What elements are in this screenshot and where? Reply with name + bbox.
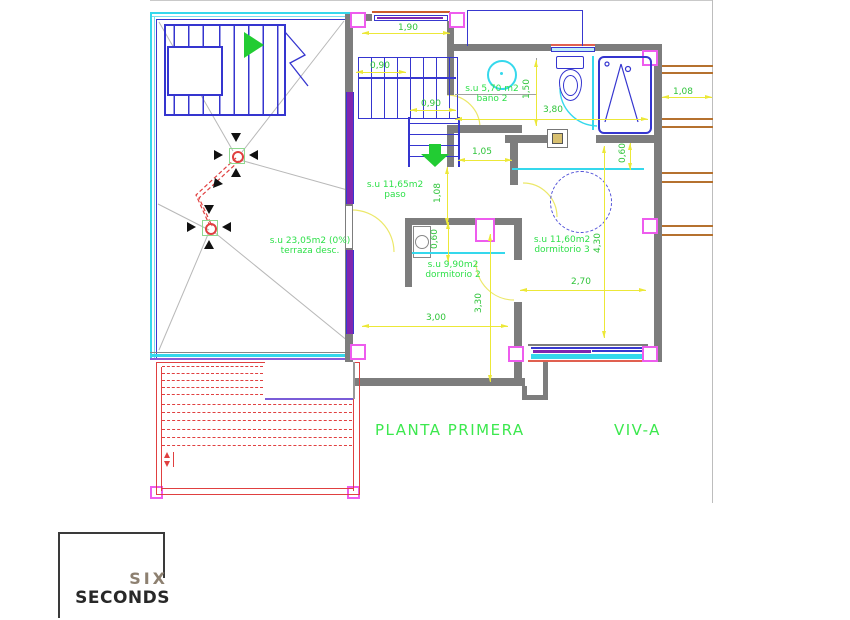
window-top-glazing [377, 17, 443, 19]
window-dorm3-head [528, 344, 648, 346]
paso-area: s.u 11,65m2 [362, 180, 428, 190]
dimension-line-11 [362, 326, 508, 327]
dimension-label-10: 3,30 [474, 289, 484, 317]
terrace-edge-top [150, 12, 353, 14]
terrace-edge-bottom-2 [150, 354, 363, 357]
dormitorio2-name: dormitorio 2 [420, 270, 486, 280]
vent-arrow-left-1 [214, 150, 223, 160]
dimension-label-2: 0,90 [416, 99, 446, 109]
dimension-label-13: 2,70 [566, 277, 596, 287]
pergola-line-2b [662, 126, 713, 128]
toilet-bowl-inner [563, 75, 578, 96]
roof-hatch-a3 [162, 380, 263, 381]
logo-square-left [58, 532, 60, 618]
window-dorm3-base [528, 360, 648, 362]
upper-outline-right [582, 10, 583, 46]
column-5 [508, 346, 524, 362]
dimension-line-13 [520, 290, 646, 291]
dimension-label-4: 1,08 [668, 87, 698, 97]
pergola-line-1b [662, 72, 713, 74]
column-1 [350, 12, 366, 28]
room-label-terraza: s.u 23,05m2 (0%) terraza desc. [262, 236, 358, 256]
column-6 [642, 346, 658, 362]
dimension-label-3: 1,05 [467, 147, 497, 157]
door-gap-dorm2 [514, 260, 522, 302]
terrace-edge-top-3 [156, 19, 353, 20]
dormitorio3-name: dormitorio 3 [528, 245, 596, 255]
dimension-line-0 [362, 33, 450, 34]
chimney-ring-2 [205, 223, 217, 235]
dimension-line-12 [604, 146, 605, 338]
dimension-label-8: 1,08 [433, 179, 443, 207]
room-label-paso: s.u 11,65m2 paso [362, 180, 428, 200]
pergola-line-4a [662, 225, 713, 227]
window-dorm3-glazing [533, 350, 591, 353]
paso-name: paso [362, 190, 428, 200]
interior-stair-divider [358, 77, 456, 79]
dimension-label-1: 0,90 [365, 61, 395, 71]
stair-down-arrow-icon [421, 154, 449, 167]
chimney-ring-1 [232, 151, 244, 163]
vent-arrow-right-2 [222, 222, 231, 232]
roof-hatch-b2 [162, 412, 352, 413]
roof-hatch-b1 [162, 404, 352, 405]
flue-arrow-icon [213, 178, 223, 188]
roof-hatch-b6 [162, 445, 352, 446]
vent-arrow-bottom-2 [204, 240, 214, 249]
floor-plan-canvas: 1,90 0,90 0,90 1,05 1,08 1,50 3,80 0,60 … [0, 0, 850, 620]
pergola-line-3a [662, 172, 713, 174]
dimension-line-5 [536, 60, 537, 126]
plan-title: PLANTA PRIMERA [375, 421, 525, 439]
window-left-upper [346, 92, 354, 204]
washbasin-dot [500, 72, 503, 75]
dimension-line-8 [447, 167, 448, 225]
pergola-line-3b [662, 181, 713, 183]
dormitorio3-area: s.u 11,60m2 [528, 235, 596, 245]
closet-front-line-dorm2 [412, 252, 505, 254]
logo-square-top [58, 532, 165, 534]
window-dorm3-frame1 [531, 347, 645, 349]
dimension-label-11: 3,00 [421, 313, 451, 323]
upper-outline-left [467, 10, 468, 46]
wall-box-inner [552, 133, 563, 144]
pergola-line-4b [662, 234, 713, 236]
wall-dorm2-top [405, 218, 514, 225]
closet-front-line-dorm3 [512, 168, 644, 170]
terrace-edge-left-3 [156, 19, 157, 359]
shower-tray-icon [598, 56, 652, 134]
wall-step-3 [543, 362, 548, 400]
dimension-label-9: 0,60 [430, 225, 440, 253]
dimension-line-6 [455, 119, 648, 120]
vent-arrow-right-1 [249, 150, 258, 160]
vent-arrow-top-2 [204, 205, 214, 214]
window-left-lower [346, 250, 354, 334]
slope-marker-down-icon [164, 461, 170, 467]
dimension-label-6: 3,80 [538, 105, 568, 115]
column-2 [449, 12, 465, 28]
terrace-edge-top-2 [152, 16, 352, 17]
roof-hatch-a5 [162, 394, 263, 395]
roof-hatch-a1 [162, 366, 263, 367]
dimension-label-0: 1,90 [393, 23, 423, 33]
terraza-area: s.u 23,05m2 (0%) [262, 236, 358, 246]
bano2-name: baño 2 [462, 94, 522, 104]
wall-dorm3-left-stub [510, 143, 518, 185]
logo-text-six: SIX [110, 569, 168, 588]
room-label-dormitorio3: s.u 11,60m2 dormitorio 3 [528, 235, 596, 255]
lower-roof-notch-edge [265, 398, 353, 400]
bano2-area: s.u 5,70 m2 [462, 84, 522, 94]
roof-hatch-a4 [162, 387, 263, 388]
column-4 [350, 344, 366, 360]
slope-marker-up-icon [164, 452, 170, 458]
dashed-circle-furniture [550, 171, 612, 233]
vent-arrow-left-2 [187, 222, 196, 232]
dimension-line-4 [662, 97, 712, 98]
stair-down-arrow-stem [429, 144, 441, 154]
dimension-line-3 [458, 160, 512, 161]
terrace-edge-left [150, 12, 152, 360]
window-dorm3-sill [531, 354, 645, 359]
dimension-line-1 [356, 72, 406, 73]
roof-hatch-a2 [162, 373, 263, 374]
logo-text-seconds: SECONDS [64, 588, 170, 608]
lower-roof-notch [265, 362, 355, 399]
room-label-dormitorio2: s.u 9,90m2 dormitorio 2 [420, 260, 486, 280]
window-bath-lintel [551, 44, 595, 46]
upper-outline-top [467, 10, 583, 11]
terraza-name: terraza desc. [262, 246, 358, 256]
wall-closet-left [405, 225, 412, 287]
roof-hatch-b4 [162, 429, 352, 430]
terrace-edge-left-2 [154, 16, 155, 358]
lower-roof-inner-bottom [161, 488, 354, 489]
roof-hatch-b5 [162, 437, 352, 438]
dimension-line-9 [448, 222, 449, 262]
window-bath-frame [551, 47, 595, 52]
dimension-label-5: 1,50 [522, 75, 532, 103]
dimension-line-10 [490, 234, 491, 382]
stair-break-symbol [285, 32, 308, 86]
unit-label: VIV-A [614, 421, 661, 439]
terrace-edge-bottom-1 [150, 352, 363, 353]
dimension-line-2 [410, 110, 456, 111]
vent-arrow-bottom-1 [231, 168, 241, 177]
closet-fixture-circle [415, 235, 429, 249]
toilet-tank-icon [556, 56, 584, 69]
window-dorm3-frame2 [592, 350, 644, 352]
column-closet [475, 218, 495, 242]
wall-right [654, 51, 662, 362]
room-label-bano2: s.u 5,70 m2 baño 2 [462, 84, 522, 104]
vent-arrow-top-1 [231, 133, 241, 142]
pergola-line-1a [662, 65, 713, 67]
dormitorio2-area: s.u 9,90m2 [420, 260, 486, 270]
terrace-edge-bottom-3 [150, 358, 363, 360]
dimension-line-7 [630, 143, 631, 170]
wall-dorm2-bottom [353, 378, 525, 386]
roof-hatch-b3 [162, 420, 352, 421]
dimension-label-7: 0,60 [618, 139, 628, 167]
exterior-stair-landing [167, 46, 223, 96]
slope-marker-line [173, 452, 174, 467]
frame-line-right [712, 0, 713, 503]
stair-direction-arrow-icon [244, 32, 264, 58]
frame-line-top [150, 0, 713, 1]
window-top-lintel [372, 11, 450, 13]
pergola-line-2a [662, 118, 713, 120]
column-7 [642, 218, 658, 234]
